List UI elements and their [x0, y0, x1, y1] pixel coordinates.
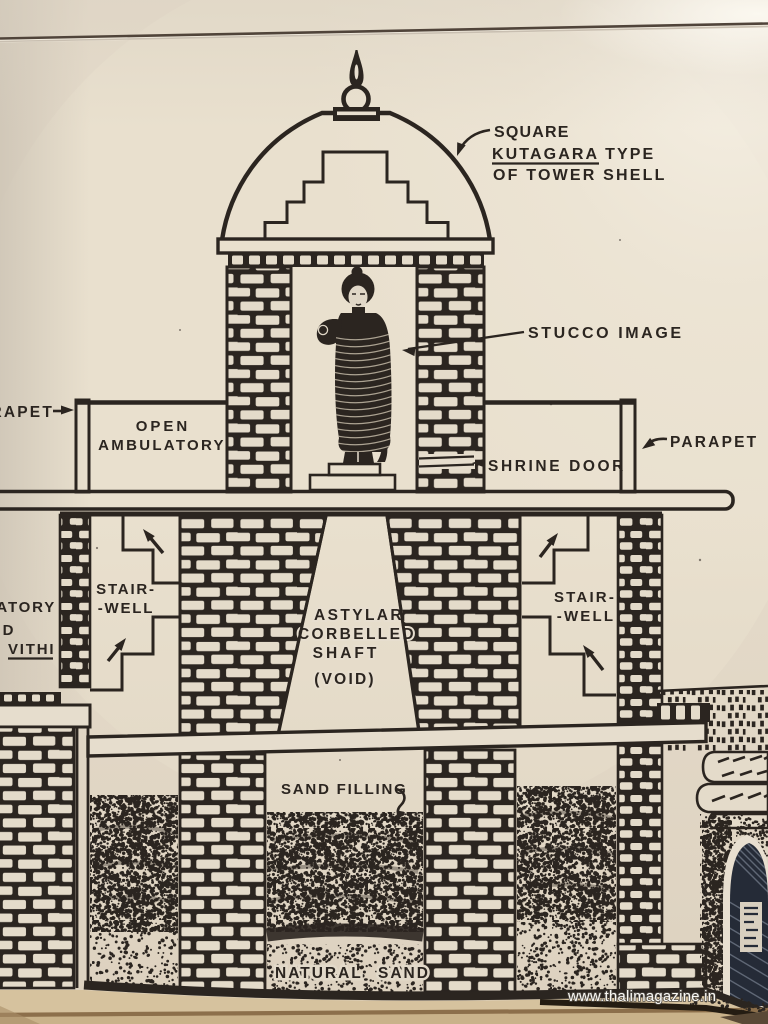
svg-text:CORBELLED: CORBELLED [298, 626, 416, 643]
svg-text:-WELL: -WELL [557, 608, 615, 625]
svg-text:AMBULATORY: AMBULATORY [98, 437, 226, 454]
svg-text:AMBULATORY: AMBULATORY [0, 599, 56, 616]
svg-text:OPEN: OPEN [136, 418, 191, 435]
svg-text:PARAPET: PARAPET [0, 404, 54, 421]
svg-text:ASTYLAR: ASTYLAR [314, 607, 404, 624]
svg-text:SHRINE DOOR: SHRINE DOOR [488, 458, 626, 475]
svg-text:D: D [3, 622, 14, 639]
svg-text:STAIR-: STAIR- [96, 581, 156, 598]
svg-text:KUTAGARA TYPE: KUTAGARA TYPE [492, 146, 655, 163]
svg-text:STAIR-: STAIR- [554, 589, 616, 606]
svg-text:-WELL: -WELL [98, 600, 154, 617]
svg-text:www.thalimagazine.in: www.thalimagazine.in [567, 989, 716, 1005]
svg-text:OF TOWER SHELL: OF TOWER SHELL [493, 167, 667, 184]
svg-text:SAND FILLING: SAND FILLING [281, 781, 408, 798]
svg-text:SQUARE: SQUARE [494, 124, 570, 141]
svg-text:PARAPET: PARAPET [670, 434, 758, 451]
svg-text:SAND: SAND [378, 965, 430, 982]
svg-text:NATURAL: NATURAL [275, 965, 363, 982]
svg-text:(VOID): (VOID) [314, 671, 375, 688]
svg-text:STUCCO IMAGE: STUCCO IMAGE [528, 325, 684, 342]
svg-text:SHAFT: SHAFT [313, 645, 380, 662]
svg-text:VITHI: VITHI [8, 641, 55, 658]
